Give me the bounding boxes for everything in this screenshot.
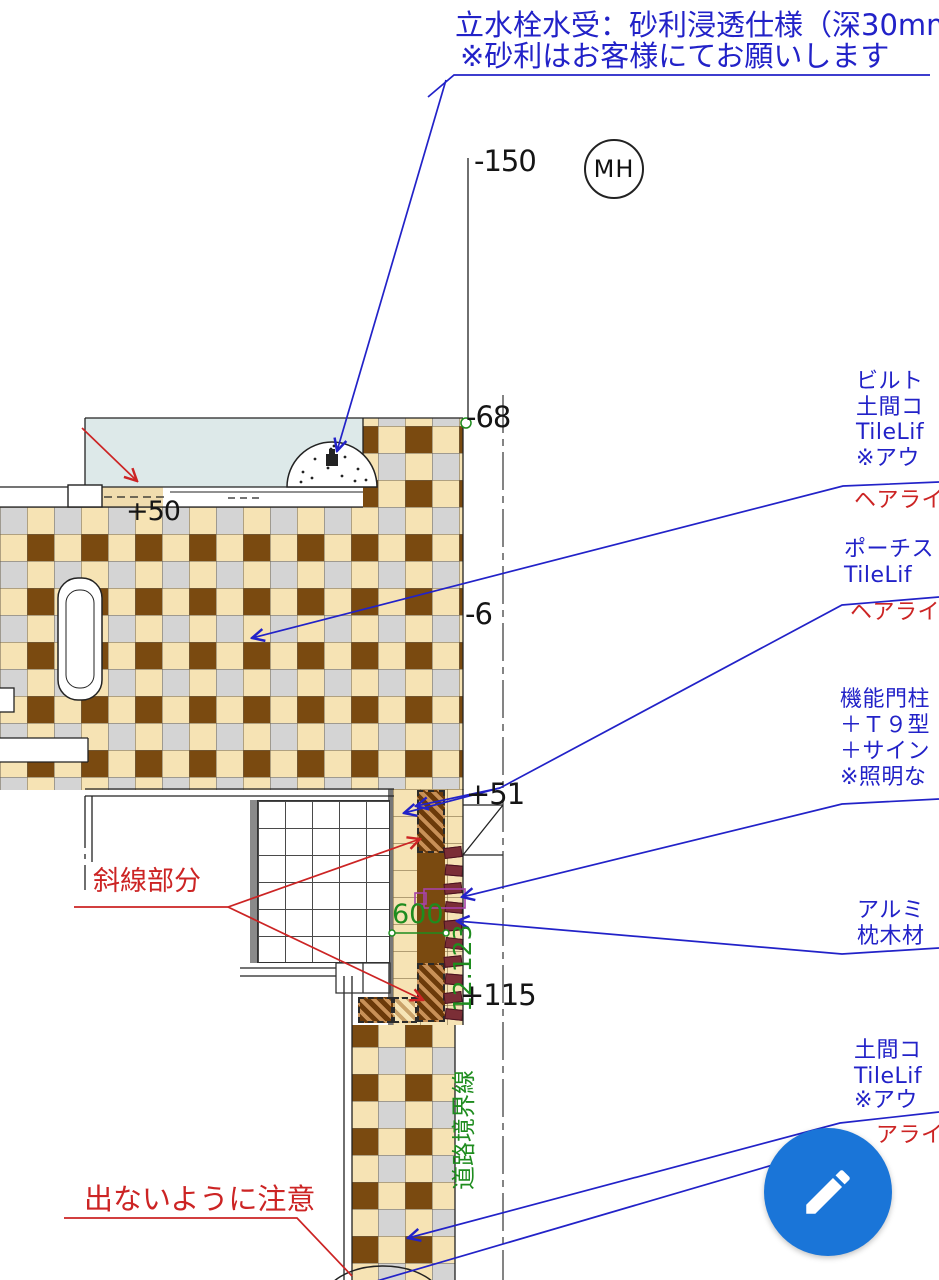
callout-b5-sub: アライ bbox=[876, 1124, 939, 1147]
blue-leader-lines bbox=[252, 75, 939, 1280]
dimension-600: 600 bbox=[392, 901, 444, 929]
callout-b1-line2: 土間コ bbox=[856, 396, 924, 419]
road-boundary-label: 道路境界線 bbox=[452, 1055, 477, 1190]
callout-b2-line1: ポーチス bbox=[844, 538, 934, 561]
callout-b3-line3: ＋サイン bbox=[840, 740, 930, 763]
level-minus6: -6 bbox=[465, 599, 492, 629]
caution-note: 出ないように注意 bbox=[84, 1184, 315, 1214]
callout-b1-line1: ビルト bbox=[856, 370, 924, 393]
green-dimension-marks bbox=[389, 418, 471, 936]
level-plus50: +50 bbox=[126, 498, 180, 526]
callout-b3-line4: ※照明な bbox=[840, 766, 926, 789]
callout-b2-sub: ヘアライ bbox=[850, 601, 939, 624]
callout-b5-line2: TileLif bbox=[854, 1065, 922, 1088]
callout-b1-line3: TileLif bbox=[856, 421, 924, 444]
callout-b5-line1: 土間コ bbox=[854, 1039, 922, 1062]
level-minus68: -68 bbox=[466, 402, 510, 432]
pencil-icon bbox=[799, 1163, 857, 1221]
cad-drawing-canvas: 立水栓水受：砂利浸透仕様（深30mm） ※砂利はお客様にてお願いします MH -… bbox=[0, 0, 939, 1280]
edit-fab-button[interactable] bbox=[764, 1128, 892, 1256]
callout-b2-line2: TileLif bbox=[844, 564, 912, 587]
callout-b3-line1: 機能門柱 bbox=[840, 688, 930, 711]
red-leader-lines bbox=[64, 428, 423, 1276]
callout-b4-line2: 枕木材 bbox=[857, 925, 925, 948]
callout-b3-line2: ＋Ｔ９型 bbox=[840, 714, 930, 737]
top-note-line1: 立水栓水受：砂利浸透仕様（深30mm） bbox=[455, 10, 939, 40]
hatch-note: 斜線部分 bbox=[93, 868, 201, 896]
callout-b5-line3: ※アウ bbox=[854, 1089, 918, 1112]
plan-outline-lines bbox=[0, 158, 503, 1280]
level-plus51: +51 bbox=[466, 779, 524, 809]
dimension-12123: 12.123 bbox=[450, 897, 476, 1012]
plan-white-features bbox=[0, 485, 443, 1280]
callout-b4-line1: アルミ bbox=[857, 899, 924, 922]
callout-b1-sub: ヘアライ bbox=[854, 489, 939, 512]
level-minus150: -150 bbox=[474, 146, 536, 176]
callout-b1-line4: ※アウ bbox=[856, 447, 920, 470]
manhole-symbol: MH bbox=[584, 139, 644, 199]
top-note-line2: ※砂利はお客様にてお願いします bbox=[460, 41, 889, 71]
